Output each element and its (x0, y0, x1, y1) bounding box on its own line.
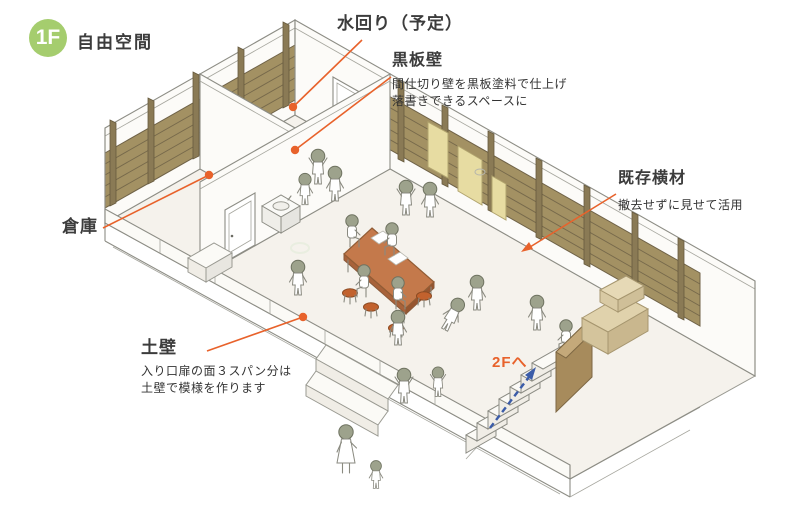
person-figure-child (369, 461, 383, 489)
annotation-earthen-wall-desc2: 土壁で模様を作ります (141, 380, 292, 397)
annotation-blackboard-wall-title: 黒板壁 (392, 52, 567, 70)
page-title: 自由空間 (77, 28, 153, 53)
orange-dot-icon (289, 103, 297, 111)
annotation-existing-timber: 既存横材 撤去せずに見せて活用 (618, 170, 743, 214)
annotation-existing-timber-title: 既存横材 (618, 170, 743, 188)
annotation-earthen-wall: 土壁 入り口扉の面３スパン分は 土壁で模様を作ります (141, 338, 292, 397)
annotation-earthen-wall-title: 土壁 (141, 338, 292, 358)
annotation-storage-title: 倉庫 (62, 217, 98, 237)
orange-dot-icon (291, 146, 299, 154)
annotation-water-area: 水回り（予定） (337, 14, 463, 34)
floor-badge: 1F (29, 19, 67, 57)
hung-board (492, 176, 506, 220)
annotation-blackboard-wall-desc1: 間仕切り壁を黒板塗料で仕上げ (392, 76, 567, 93)
annotation-storage: 倉庫 (62, 217, 98, 237)
floor-badge-label: 1F (36, 26, 61, 50)
annotation-stairs-up: 2Fへ (492, 351, 528, 372)
floor-plan-page: 1F 自由空間 水回り（予定） 黒板壁 間仕切り壁を黒板塗料で仕上げ 落書きでき… (0, 0, 789, 526)
annotation-earthen-wall-desc1: 入り口扉の面３スパン分は (141, 363, 292, 380)
orange-dot-icon (299, 313, 307, 321)
orange-dot-icon (205, 171, 213, 179)
annotation-blackboard-wall-desc2: 落書きできるスペースに (392, 93, 567, 110)
annotation-blackboard-wall: 黒板壁 間仕切り壁を黒板塗料で仕上げ 落書きできるスペースに (392, 52, 567, 110)
person-figure-adult (337, 425, 357, 473)
annotation-existing-timber-desc1: 撤去せずに見せて活用 (618, 197, 743, 214)
annotation-water-area-title: 水回り（予定） (337, 14, 463, 34)
